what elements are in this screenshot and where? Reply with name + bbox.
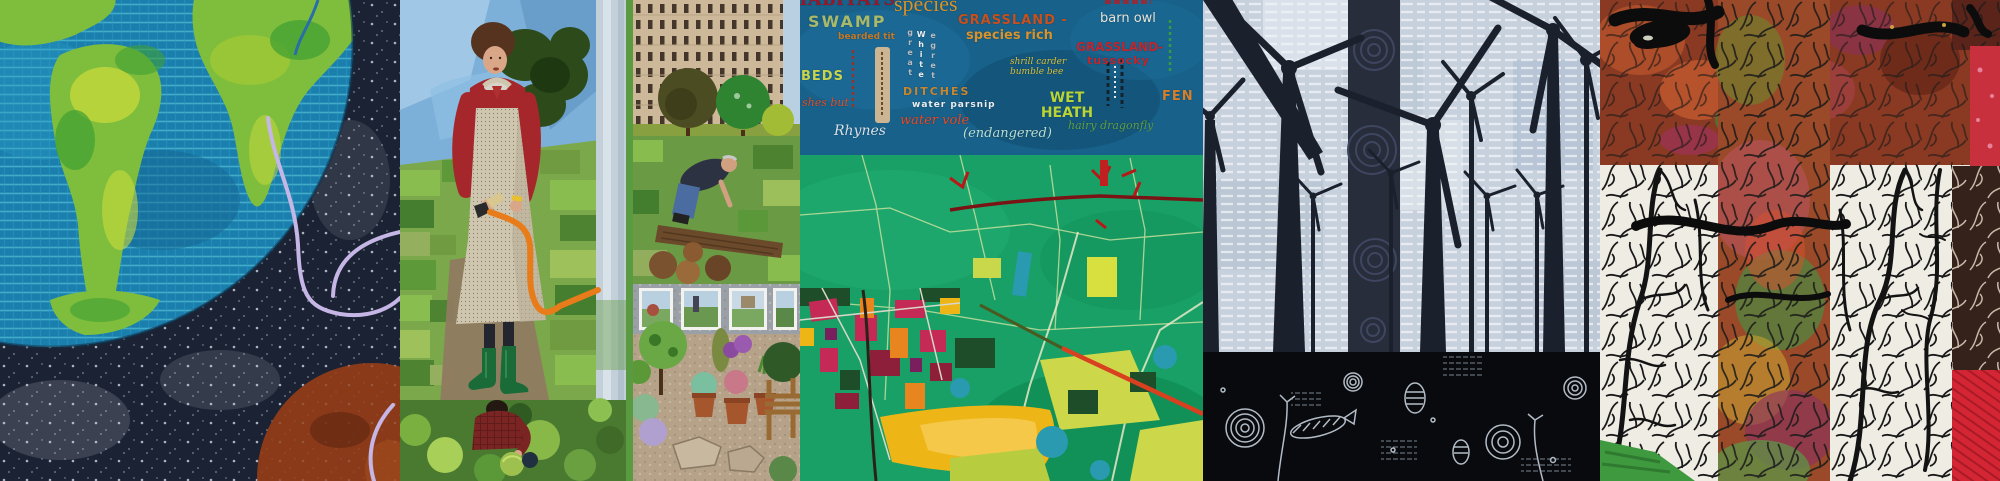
tree-veins-illustration (1600, 0, 2000, 481)
map-label-bearded-tit: bearded tit (838, 33, 895, 43)
map-label-tussocky: tussocky (1087, 55, 1150, 67)
wind-turbine-illustration (1203, 0, 1600, 481)
panel-earth-quilt (0, 0, 400, 481)
panel-habitat-map-quilt: HABITATS species SWAMP bearded tit BEDS … (800, 0, 1203, 481)
map-label-grassland-rich: GRASSLAND - (958, 14, 1068, 28)
map-label-wet-heath: WET HEATH (1040, 91, 1094, 122)
panel-tree-veins-quilt (1600, 0, 2000, 481)
map-label-ditches: DITCHES (903, 86, 970, 98)
map-label-rhynes: Rhynes (834, 124, 886, 139)
panel-wind-turbine-quilt (1203, 0, 1600, 481)
map-label-barn-owl: barn owl (1100, 12, 1156, 26)
city-garden-quilt-illustration (633, 0, 800, 481)
map-label-great: great (905, 28, 914, 78)
map-label-water-vole: water vole (900, 114, 969, 128)
habitat-map-labels: HABITATS species SWAMP bearded tit BEDS … (800, 0, 1203, 155)
earth-quilt-illustration (0, 0, 400, 481)
map-label-species-rich: species rich (966, 29, 1053, 43)
map-title-habitats: HABITATS (800, 0, 895, 11)
map-label-hairy-dragonfly: hairy dragonfly (1068, 120, 1153, 132)
gardener-quilt-illustration (400, 0, 633, 481)
map-label-water-parsnip: water parsnip (912, 101, 996, 111)
fossil-band (1203, 352, 1600, 481)
map-label-endangered: (endangered) (963, 127, 1052, 141)
map-label-fen: FEN (1162, 90, 1194, 104)
map-label-beds: BEDS (801, 70, 844, 84)
map-label-swamp: SWAMP (808, 13, 886, 30)
quilt-collage-banner: HABITATS species SWAMP bearded tit BEDS … (0, 0, 2000, 481)
colourful-centre-column (1710, 0, 1835, 481)
map-label-shrill-carder-bee: shrill carder bumble bee (1010, 57, 1084, 78)
map-label-egret: egret (928, 31, 937, 81)
map-label-white: White (916, 30, 925, 80)
map-title-species: species (894, 0, 958, 16)
map-label-partial-script: shes but (802, 97, 849, 109)
map-label-grassland-tussocky: GRASSLAND- (1076, 41, 1163, 54)
field-map (800, 155, 1203, 481)
panel-city-garden-quilt (633, 0, 800, 481)
panel-gardener-quilt (400, 0, 633, 481)
